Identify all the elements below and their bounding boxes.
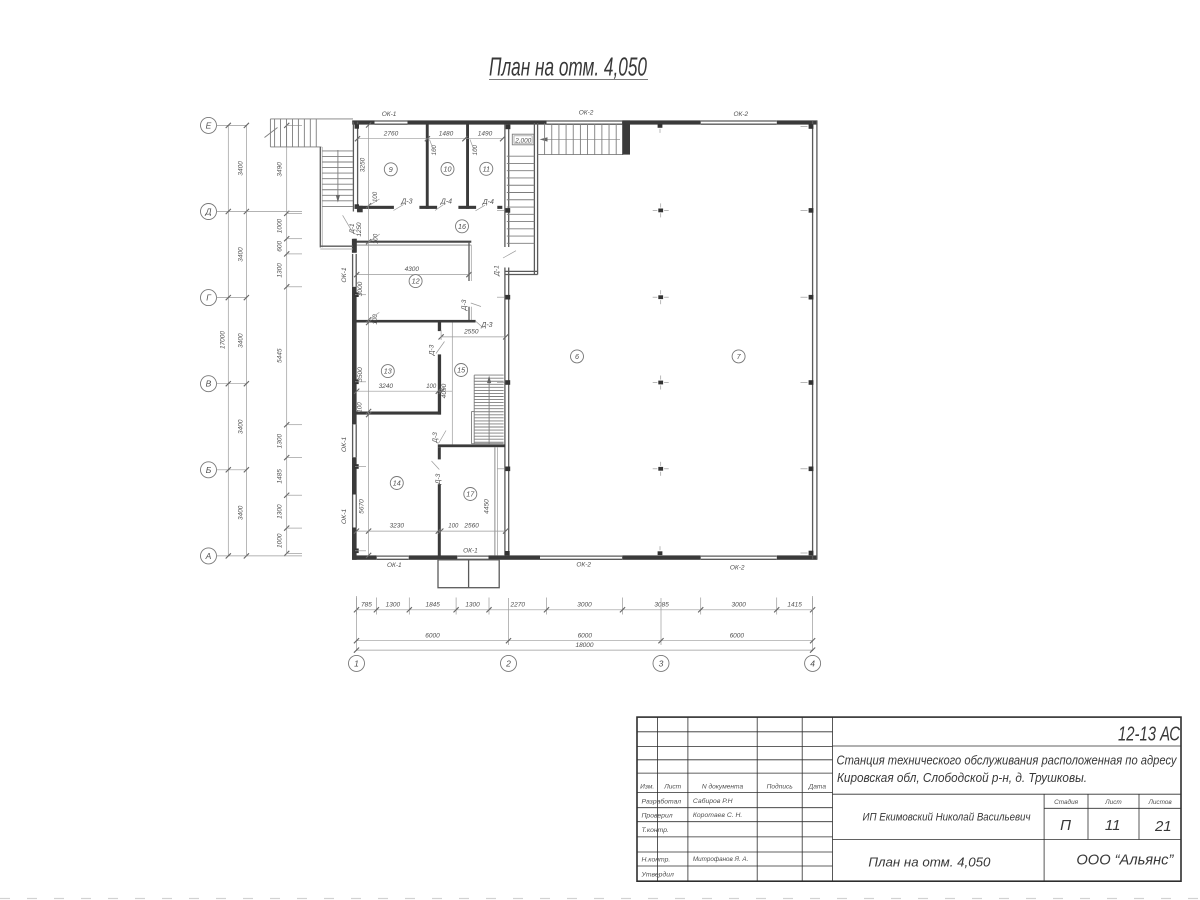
svg-text:Подпись: Подпись (767, 782, 794, 790)
svg-text:Разработал: Разработал (642, 798, 682, 806)
svg-text:ОК-2: ОК-2 (576, 562, 591, 569)
svg-text:Д-4: Д-4 (482, 199, 494, 206)
svg-text:100: 100 (426, 384, 437, 390)
svg-text:Д-3: Д-3 (480, 322, 492, 329)
svg-text:2550: 2550 (463, 329, 479, 336)
svg-text:ОК-1: ОК-1 (387, 562, 402, 569)
svg-text:12-13 АС: 12-13 АС (1118, 724, 1180, 746)
svg-text:Д-1: Д-1 (494, 265, 501, 277)
svg-text:3400: 3400 (238, 247, 245, 262)
svg-text:Коротаев С. Н.: Коротаев С. Н. (693, 812, 743, 819)
svg-text:17: 17 (466, 490, 475, 499)
svg-text:Лист: Лист (663, 783, 681, 790)
svg-text:600: 600 (277, 240, 284, 251)
svg-text:1: 1 (354, 659, 359, 669)
svg-text:3500: 3500 (357, 367, 364, 382)
svg-text:3000: 3000 (731, 602, 746, 609)
svg-text:ИП Екимовский Николай Васильев: ИП Екимовский Николай Васильевич (863, 812, 1031, 824)
svg-text:4300: 4300 (405, 266, 420, 273)
svg-text:785: 785 (361, 602, 372, 609)
svg-text:ОК-1: ОК-1 (463, 548, 478, 555)
svg-text:4090: 4090 (441, 383, 448, 398)
svg-text:N документа: N документа (702, 782, 744, 790)
svg-text:6000: 6000 (578, 632, 593, 639)
svg-text:15: 15 (457, 366, 466, 375)
svg-text:Митрофанов Я. А.: Митрофанов Я. А. (693, 856, 748, 863)
svg-text:12: 12 (412, 277, 420, 286)
svg-text:ООО “Альянс”: ООО “Альянс” (1076, 852, 1174, 869)
svg-text:Д-3: Д-3 (429, 344, 436, 356)
svg-text:3240: 3240 (379, 383, 394, 390)
svg-text:100: 100 (472, 144, 479, 155)
svg-text:П: П (1060, 817, 1071, 834)
svg-text:3000: 3000 (357, 281, 364, 296)
svg-text:3400: 3400 (238, 505, 245, 520)
svg-text:Изм.: Изм. (640, 783, 654, 790)
svg-text:13: 13 (384, 367, 392, 376)
svg-text:17000: 17000 (220, 331, 227, 349)
svg-text:ОК-2: ОК-2 (733, 111, 748, 118)
svg-text:1300: 1300 (277, 504, 284, 519)
svg-text:1250: 1250 (356, 222, 363, 237)
svg-text:2,000: 2,000 (514, 137, 531, 144)
svg-text:В: В (206, 379, 212, 389)
svg-text:9: 9 (389, 165, 393, 174)
svg-text:1300: 1300 (277, 434, 284, 449)
svg-text:А: А (205, 551, 212, 561)
svg-text:21: 21 (1154, 818, 1172, 835)
svg-text:11: 11 (1105, 817, 1121, 834)
svg-text:ОК-1: ОК-1 (341, 267, 348, 283)
svg-text:Д-1: Д-1 (349, 223, 356, 235)
svg-text:Д-3: Д-3 (400, 199, 412, 206)
svg-text:1300: 1300 (277, 263, 284, 278)
svg-text:6000: 6000 (425, 632, 440, 639)
svg-text:Д-4: Д-4 (440, 199, 452, 206)
svg-text:3400: 3400 (238, 419, 245, 434)
svg-text:4: 4 (810, 659, 815, 669)
svg-text:Н.контр.: Н.контр. (642, 857, 671, 864)
svg-text:16: 16 (458, 222, 466, 231)
svg-text:18000: 18000 (575, 642, 593, 649)
svg-text:1300: 1300 (465, 602, 480, 609)
svg-text:Т.контр.: Т.контр. (642, 827, 670, 834)
svg-text:Кировская обл, Слободской р-н,: Кировская обл, Слободской р-н, д. Трушко… (837, 771, 1087, 785)
svg-text:Б: Б (206, 465, 212, 475)
svg-text:Сабиров Р.Н: Сабиров Р.Н (693, 797, 733, 805)
svg-text:5670: 5670 (358, 499, 365, 514)
svg-text:3400: 3400 (238, 161, 245, 176)
svg-text:3250: 3250 (360, 157, 367, 172)
svg-text:1490: 1490 (478, 130, 493, 137)
svg-text:ОК-2: ОК-2 (579, 110, 594, 117)
svg-text:Лист: Лист (1104, 799, 1122, 806)
svg-text:1480: 1480 (439, 130, 454, 137)
svg-text:2270: 2270 (510, 602, 526, 609)
svg-text:Д-3: Д-3 (435, 473, 442, 485)
svg-text:14: 14 (393, 479, 401, 488)
svg-text:1485: 1485 (277, 469, 284, 484)
svg-text:100: 100 (372, 191, 379, 202)
svg-text:1300: 1300 (386, 602, 401, 609)
svg-text:План на отм. 4,050: План на отм. 4,050 (489, 52, 647, 82)
svg-text:5445: 5445 (277, 348, 284, 363)
svg-text:100: 100 (357, 402, 364, 413)
svg-text:1000: 1000 (277, 533, 284, 548)
svg-text:3400: 3400 (238, 333, 245, 348)
svg-text:ОК-2: ОК-2 (730, 565, 745, 572)
svg-text:2560: 2560 (463, 523, 479, 530)
svg-text:ОК-1: ОК-1 (341, 509, 348, 525)
svg-text:Станция технического обслужива: Станция технического обслуживания распол… (837, 754, 1178, 768)
svg-text:Стадия: Стадия (1054, 798, 1079, 806)
svg-text:3230: 3230 (390, 523, 405, 530)
svg-text:3000: 3000 (577, 602, 592, 609)
svg-text:1415: 1415 (787, 602, 802, 609)
svg-text:Дата: Дата (808, 783, 827, 790)
svg-text:План на отм. 4,050: План на отм. 4,050 (868, 855, 990, 869)
svg-text:11: 11 (483, 164, 490, 173)
svg-text:Листов: Листов (1147, 799, 1172, 806)
svg-text:1845: 1845 (425, 602, 440, 609)
svg-text:Утвердил: Утвердил (641, 871, 675, 879)
svg-text:ОК-1: ОК-1 (382, 111, 397, 118)
svg-text:2760: 2760 (383, 130, 399, 137)
svg-text:Д-3: Д-3 (432, 432, 439, 444)
svg-text:3085: 3085 (654, 602, 669, 609)
svg-text:6000: 6000 (730, 632, 745, 639)
svg-text:6: 6 (575, 352, 579, 361)
svg-text:10: 10 (444, 165, 452, 174)
svg-text:ОК-1: ОК-1 (341, 437, 348, 453)
svg-text:3: 3 (659, 659, 664, 669)
svg-text:100: 100 (448, 524, 459, 530)
svg-text:Д-3: Д-3 (461, 299, 468, 311)
svg-text:1000: 1000 (277, 218, 284, 233)
svg-text:2: 2 (505, 659, 511, 669)
svg-text:Проверил: Проверил (642, 813, 673, 820)
svg-text:4450: 4450 (484, 499, 491, 514)
svg-text:Е: Е (206, 120, 212, 130)
svg-text:3490: 3490 (277, 162, 284, 177)
svg-text:Д: Д (205, 207, 212, 217)
